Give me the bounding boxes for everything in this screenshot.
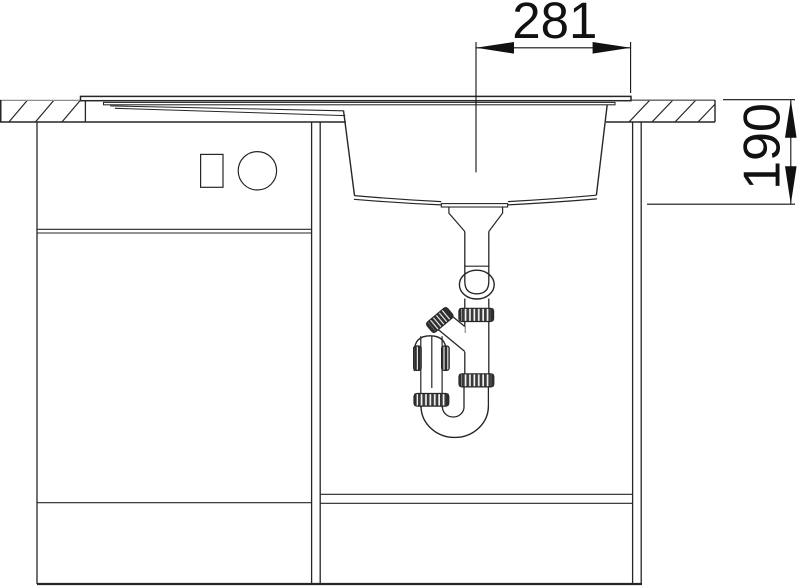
svg-text:190: 190 bbox=[734, 103, 792, 190]
svg-text:281: 281 bbox=[512, 0, 597, 49]
